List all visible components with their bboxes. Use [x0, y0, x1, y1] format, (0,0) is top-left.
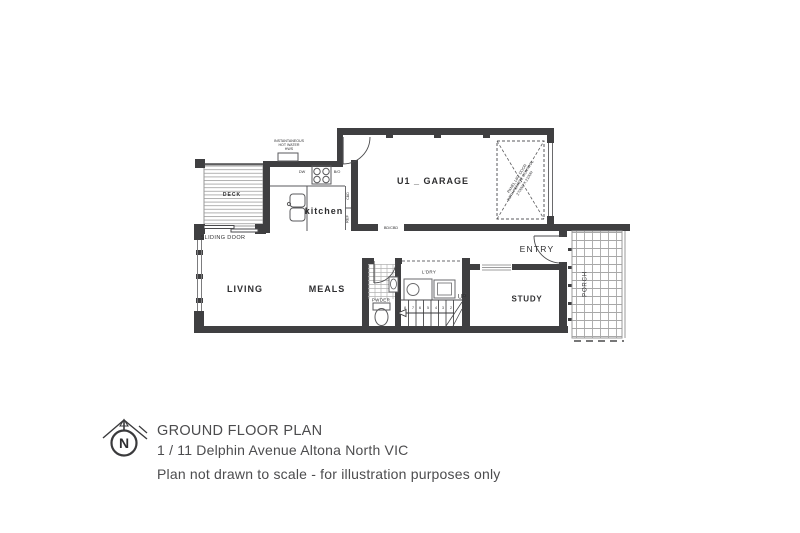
sliding-door [194, 224, 266, 234]
stair-number: 7 [412, 306, 414, 310]
powder-label: PWDER [372, 297, 390, 302]
stair-number: 3 [442, 306, 444, 310]
stair-number: 4 [435, 306, 437, 310]
porch-area [572, 231, 625, 341]
dishwasher-label: DW [299, 170, 305, 174]
entry-label: ENTRY [520, 245, 555, 255]
plan-address: 1 / 11 Delphin Avenue Altona North VIC [157, 442, 408, 458]
deck-label: DECK [223, 193, 241, 199]
stair-number: 5 [427, 306, 429, 310]
bd-cbd-label: BD/CBD [384, 226, 398, 230]
north-letter: N [119, 435, 129, 451]
laundry-label: L'DRY [422, 269, 436, 274]
porch-label: PORCH [583, 271, 590, 297]
laundry-fittings [402, 261, 460, 300]
stair-number: 8 [404, 306, 406, 310]
oven-label: B/O [334, 170, 341, 174]
sliding-door-label: SLIDING DOOR [201, 235, 246, 241]
fridge-label: REF [346, 215, 351, 223]
stair-number: 6 [419, 306, 421, 310]
floor-plan-page: U1 _ GARAGE kitchen LIVING MEALS STUDY E… [0, 0, 800, 533]
living-room-label: LIVING [227, 284, 263, 294]
meals-room-label: MEALS [309, 284, 346, 294]
powder-room [368, 261, 398, 326]
garage-internal-door [343, 137, 370, 164]
study-room-label: STUDY [511, 294, 542, 303]
stair-number: 2 [450, 306, 452, 310]
kitchen-room-label: kitchen [305, 206, 344, 216]
cupboard-label: CBD [346, 192, 350, 200]
garage-room-label: U1 _ GARAGE [397, 176, 469, 186]
stairs-up-label: UP [458, 295, 466, 302]
plan-disclaimer: Plan not drawn to scale - for illustrati… [157, 466, 500, 482]
plan-title: GROUND FLOOR PLAN [157, 423, 322, 439]
hot-water-label: INSTANTANEOUS HOT WATER HWS [274, 139, 304, 151]
